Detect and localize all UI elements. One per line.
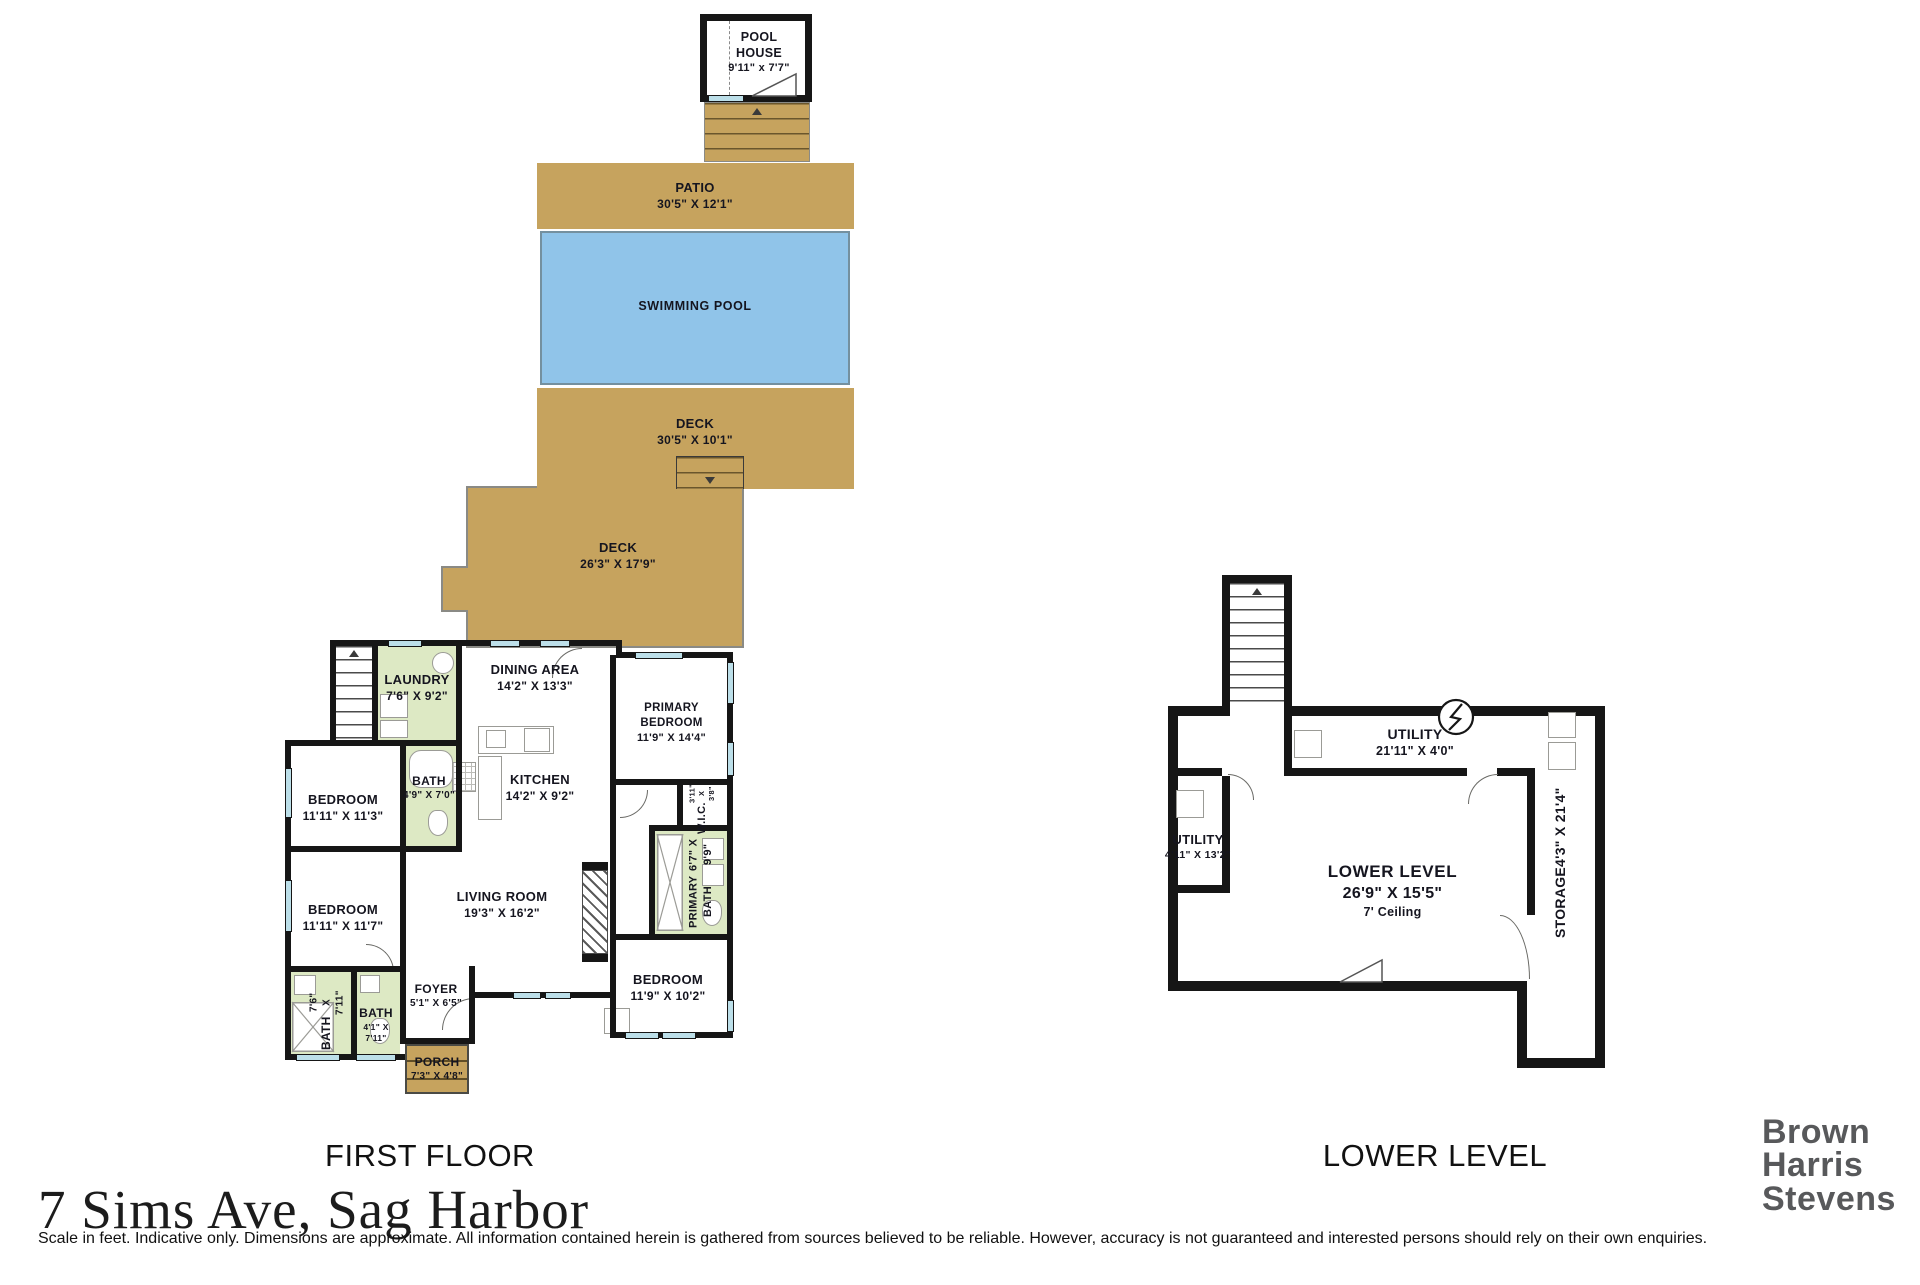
room-bath3-label: BATH 4'1" X 7'11" (352, 1010, 400, 1040)
patio-label: PATIO 30'5" X 12'1" (620, 178, 770, 214)
deck-lower-name: DECK (599, 540, 637, 557)
laundry-dims: 7'6" X 9'2" (386, 689, 448, 705)
room-kitchen-label: KITCHEN 14'2" X 9'2" (470, 768, 610, 808)
bedroom3-closet (604, 1008, 630, 1034)
steps-direction-arrow (752, 108, 762, 115)
window (727, 662, 734, 704)
brand-logo-line2: Harris (1762, 1149, 1896, 1182)
wall (1168, 885, 1230, 893)
room-bath2-label: BATH 7'6" X 7'11" (308, 988, 346, 1050)
patio-dims: 30'5" X 12'1" (657, 197, 733, 213)
bedroom1-name: BEDROOM (308, 792, 378, 809)
room-primary-bedroom-label: PRIMARY BEDROOM 11'9" X 14'4" (616, 703, 727, 743)
deck-upper-dims: 30'5" X 10'1" (657, 433, 733, 449)
room-living-label: LIVING ROOM 19'3" X 16'2" (432, 885, 572, 925)
window (356, 1054, 396, 1061)
bath1-dims: 4'9" X 7'0" (403, 789, 455, 802)
wall (285, 966, 406, 972)
wall (330, 640, 336, 746)
utility-left-door-swing (1228, 774, 1254, 800)
bedroom2-name: BEDROOM (308, 902, 378, 919)
first-floor-caption: FIRST FLOOR (250, 1138, 610, 1174)
room-utility-top-label: UTILITY 21'11" X 4'0" (1335, 720, 1495, 764)
swimming-pool-name: SWIMMING POOL (638, 298, 751, 314)
room-bedroom1-label: BEDROOM 11'11" X 11'3" (288, 788, 398, 828)
deck-lower-notch (441, 566, 468, 612)
room-storage-label: STORAGE 4'3" X 21'4" (1534, 778, 1586, 948)
window (727, 742, 734, 776)
porch-dims: 7'3" X 4'8" (411, 1070, 463, 1083)
room-lower-main-label: LOWER LEVEL 26'9" X 15'5" 7' Ceiling (1285, 856, 1500, 926)
room-dining-label: DINING AREA 14'2" X 13'3" (460, 658, 610, 698)
wall (649, 825, 655, 940)
lower-main-dims: 26'9" X 15'5" (1343, 884, 1443, 905)
stairs-lower-arrow (1252, 588, 1262, 595)
kitchen-sink (486, 730, 506, 748)
wall (1292, 768, 1467, 776)
laundry-name: LAUNDRY (384, 672, 449, 689)
utility-equipment (1294, 730, 1322, 758)
wall (1222, 575, 1292, 583)
utility-equipment (1548, 712, 1576, 738)
stairs-first-floor (336, 646, 372, 740)
living-dims: 19'3" X 16'2" (464, 906, 540, 922)
living-name: LIVING ROOM (457, 889, 548, 906)
utility-equipment (1176, 790, 1204, 818)
room-foyer-label: FOYER 5'1" X 6'5" (400, 980, 472, 1012)
primary-bath-dims: 6'7" X 9'9" (687, 836, 716, 873)
wall (616, 640, 622, 658)
bedroom3-dims: 11'9" X 10'2" (630, 989, 705, 1005)
lower-level-caption: LOWER LEVEL (1250, 1138, 1620, 1174)
lower-corridor-door-swing (1468, 774, 1498, 804)
storage-name: STORAGE (1551, 867, 1569, 938)
bedroom1-dims: 11'11" X 11'3" (303, 809, 384, 825)
floorplan-sheet: DECK 26'3" X 17'9" POOL HOUSE 9'11" x 7'… (0, 0, 1920, 1285)
brand-logo-line3: Stevens (1762, 1183, 1896, 1216)
bath1-name: BATH (412, 774, 446, 790)
swimming-pool-label: SWIMMING POOL (620, 294, 770, 318)
utility-top-name: UTILITY (1388, 725, 1443, 743)
fireplace (582, 870, 608, 954)
window (296, 1054, 340, 1061)
window (635, 652, 683, 659)
bath3-dims: 4'1" X 7'11" (352, 1022, 400, 1044)
storage-dims: 4'3" X 21'4" (1551, 788, 1569, 868)
wic-name: W.I.C. (695, 803, 709, 835)
deck-lower-dims: 26'3" X 17'9" (580, 557, 656, 573)
brand-logo-line1: Brown (1762, 1116, 1896, 1149)
room-laundry-label: LAUNDRY 7'6" X 9'2" (378, 668, 456, 708)
lower-exterior-door-swing-icon (1340, 958, 1384, 984)
deck-upper-name: DECK (676, 416, 714, 433)
window (513, 992, 541, 999)
bath1-toilet (428, 810, 448, 836)
room-bath1-label: BATH 4'9" X 7'0" (398, 770, 460, 806)
kitchen-name: KITCHEN (510, 772, 570, 789)
bedroom2-dims: 11'11" X 11'7" (303, 919, 384, 935)
primary-bedroom-door-swing (620, 790, 648, 818)
wall (1222, 575, 1230, 716)
window (545, 992, 571, 999)
kitchen-dims: 14'2" X 9'2" (506, 789, 575, 805)
window (625, 1032, 659, 1039)
window (388, 640, 422, 647)
foyer-dims: 5'1" X 6'5" (410, 997, 462, 1010)
bath2-dims: 7'6" X 7'11" (308, 988, 347, 1016)
room-utility-left-label: UTILITY 4'11" X 13'2" (1158, 826, 1238, 868)
window (727, 1000, 734, 1032)
deck-upper-label: DECK 30'5" X 10'1" (620, 414, 770, 450)
wic-dims: 3'11" X 3'8" (687, 784, 716, 803)
bedroom3-name: BEDROOM (633, 972, 703, 989)
lower-main-name: LOWER LEVEL (1328, 861, 1457, 883)
deck-steps-arrow (705, 477, 715, 484)
fireplace-cap-top (582, 862, 608, 870)
wall (285, 846, 462, 852)
deck-lower-label: DECK 26'3" X 17'9" (545, 538, 691, 574)
wall (469, 992, 616, 998)
room-primary-bath-label: PRIMARY BATH 6'7" X 9'9" (680, 836, 722, 930)
room-bedroom2-label: BEDROOM 11'11" X 11'7" (288, 898, 398, 938)
wall (1517, 981, 1527, 1068)
utility-left-name: UTILITY (1172, 832, 1223, 849)
wall (1517, 1058, 1605, 1068)
wall (610, 934, 733, 940)
room-bedroom3-label: BEDROOM 11'9" X 10'2" (608, 968, 728, 1008)
porch-name: PORCH (415, 1055, 460, 1071)
dining-dims: 14'2" X 13'3" (497, 679, 573, 695)
dining-name: DINING AREA (491, 662, 580, 679)
disclaimer-text: Scale in feet. Indicative only. Dimensio… (38, 1230, 1898, 1248)
window (540, 640, 570, 647)
window (490, 640, 520, 647)
utility-top-dims: 21'11" X 4'0" (1376, 743, 1454, 759)
pool-house-label: POOL HOUSE 9'11" x 7'7" (716, 26, 802, 78)
foyer-name: FOYER (415, 982, 458, 998)
primary-bedroom-dims: 11'9" X 14'4" (637, 731, 706, 745)
pool-house-window (708, 95, 744, 102)
lower-main-ceiling-note: 7' Ceiling (1363, 904, 1421, 920)
room-wic-label: W.I.C. 3'11" X 3'8" (682, 786, 722, 832)
primary-bath-name: PRIMARY BATH (687, 873, 716, 930)
utility-equipment (1548, 742, 1576, 770)
pool-house-door-swing-icon (752, 72, 798, 98)
bath3-name: BATH (359, 1006, 393, 1022)
wall (1176, 768, 1222, 776)
patio-name: PATIO (675, 180, 714, 197)
bath2-name: BATH (319, 1016, 335, 1050)
pool-house-name: POOL HOUSE (716, 29, 802, 62)
fireplace-cap-bottom (582, 954, 608, 962)
brand-logo: Brown Harris Stevens (1762, 1116, 1896, 1216)
wall (1595, 706, 1605, 1068)
deck-steps (676, 456, 744, 489)
stairs-lower-level (1230, 583, 1284, 708)
dryer (380, 720, 408, 738)
stairs-arrow (349, 650, 359, 657)
porch-label: PORCH 7'3" X 4'8" (405, 1052, 469, 1086)
wall (1284, 716, 1292, 776)
wall (1284, 575, 1292, 716)
primary-bedroom-name: PRIMARY BEDROOM (616, 701, 727, 731)
window (662, 1032, 696, 1039)
utility-left-dims: 4'11" X 13'2" (1165, 849, 1231, 863)
bath3-sink (360, 975, 380, 993)
storage-door-swing (1500, 915, 1530, 979)
kitchen-stove (524, 728, 550, 752)
